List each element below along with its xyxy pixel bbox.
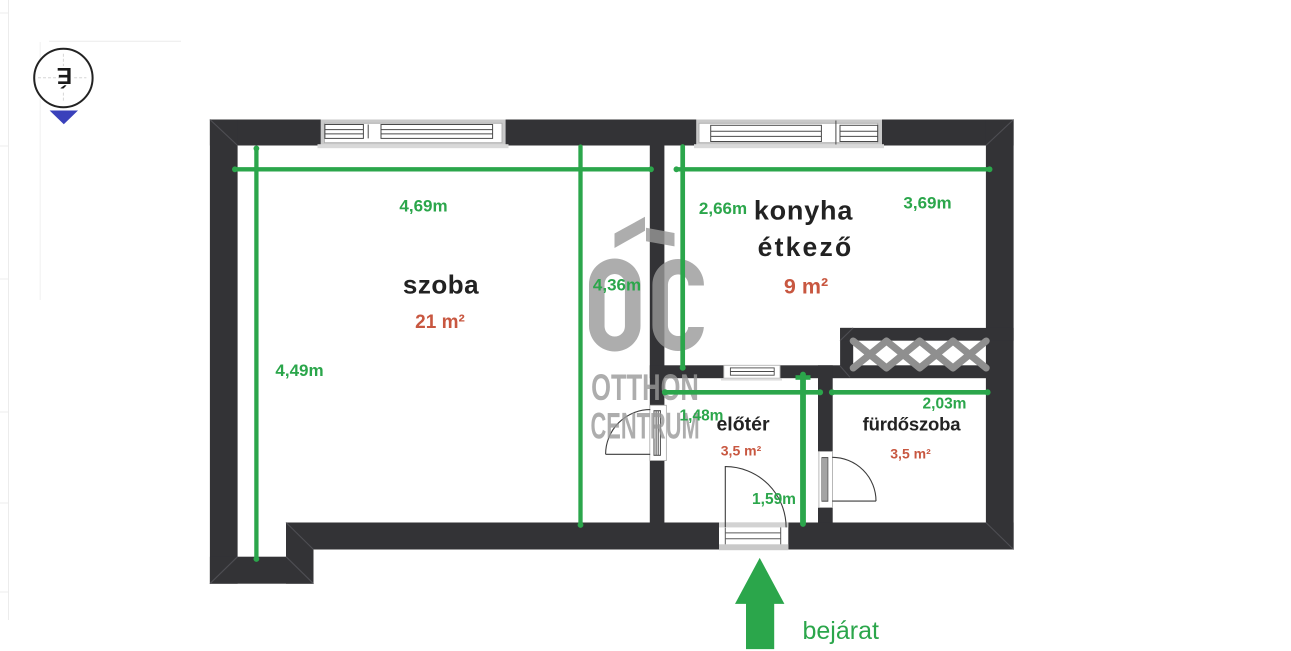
svg-text:fürdőszoba: fürdőszoba xyxy=(863,414,962,435)
svg-text:konyha: konyha xyxy=(754,196,854,226)
svg-text:2,03m: 2,03m xyxy=(923,396,967,413)
svg-text:2,66m: 2,66m xyxy=(699,199,747,218)
svg-text:21 m²: 21 m² xyxy=(415,312,465,333)
svg-text:4,36m: 4,36m xyxy=(593,276,641,295)
svg-text:OTTHON: OTTHON xyxy=(591,366,699,408)
svg-text:1,59m: 1,59m xyxy=(752,491,796,508)
svg-text:előtér: előtér xyxy=(716,414,770,436)
svg-text:bejárat: bejárat xyxy=(803,617,879,645)
svg-text:4,49m: 4,49m xyxy=(275,361,323,380)
svg-text:étkező: étkező xyxy=(758,232,854,262)
svg-text:szoba: szoba xyxy=(403,270,479,300)
svg-text:4,69m: 4,69m xyxy=(399,197,447,216)
svg-text:9 m²: 9 m² xyxy=(784,275,828,299)
svg-text:3,5 m²: 3,5 m² xyxy=(721,443,762,459)
svg-text:3,5 m²: 3,5 m² xyxy=(890,446,931,462)
svg-text:3,69m: 3,69m xyxy=(903,194,951,213)
svg-text:É: É xyxy=(57,63,72,90)
